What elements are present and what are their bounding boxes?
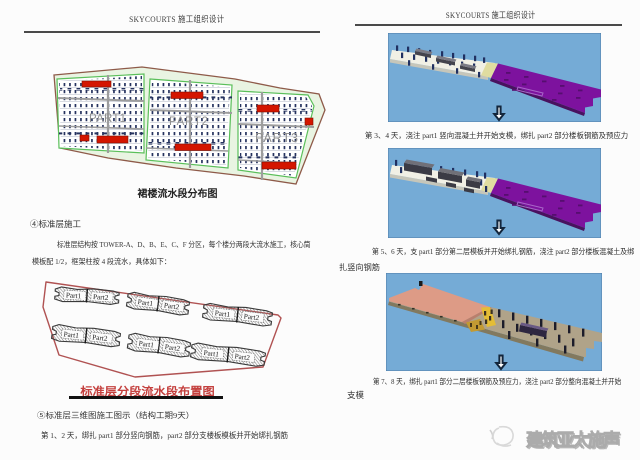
svg-text:Part2: Part2 <box>234 351 251 362</box>
svg-text:Part1: Part1 <box>66 290 82 300</box>
svg-text:PART2: PART2 <box>169 116 208 128</box>
svg-text:Part2: Part2 <box>243 312 260 323</box>
svg-text:PART3: PART3 <box>255 131 298 145</box>
svg-text:建筑亚太施声: 建筑亚太施声 <box>526 430 621 450</box>
svg-text:Part2: Part2 <box>93 292 109 302</box>
svg-text:Part1: Part1 <box>203 348 220 359</box>
svg-text:Part1: Part1 <box>63 329 80 340</box>
svg-text:Part2: Part2 <box>92 332 109 343</box>
svg-text:Part1: Part1 <box>214 308 231 319</box>
svg-text:PART1: PART1 <box>89 113 126 125</box>
